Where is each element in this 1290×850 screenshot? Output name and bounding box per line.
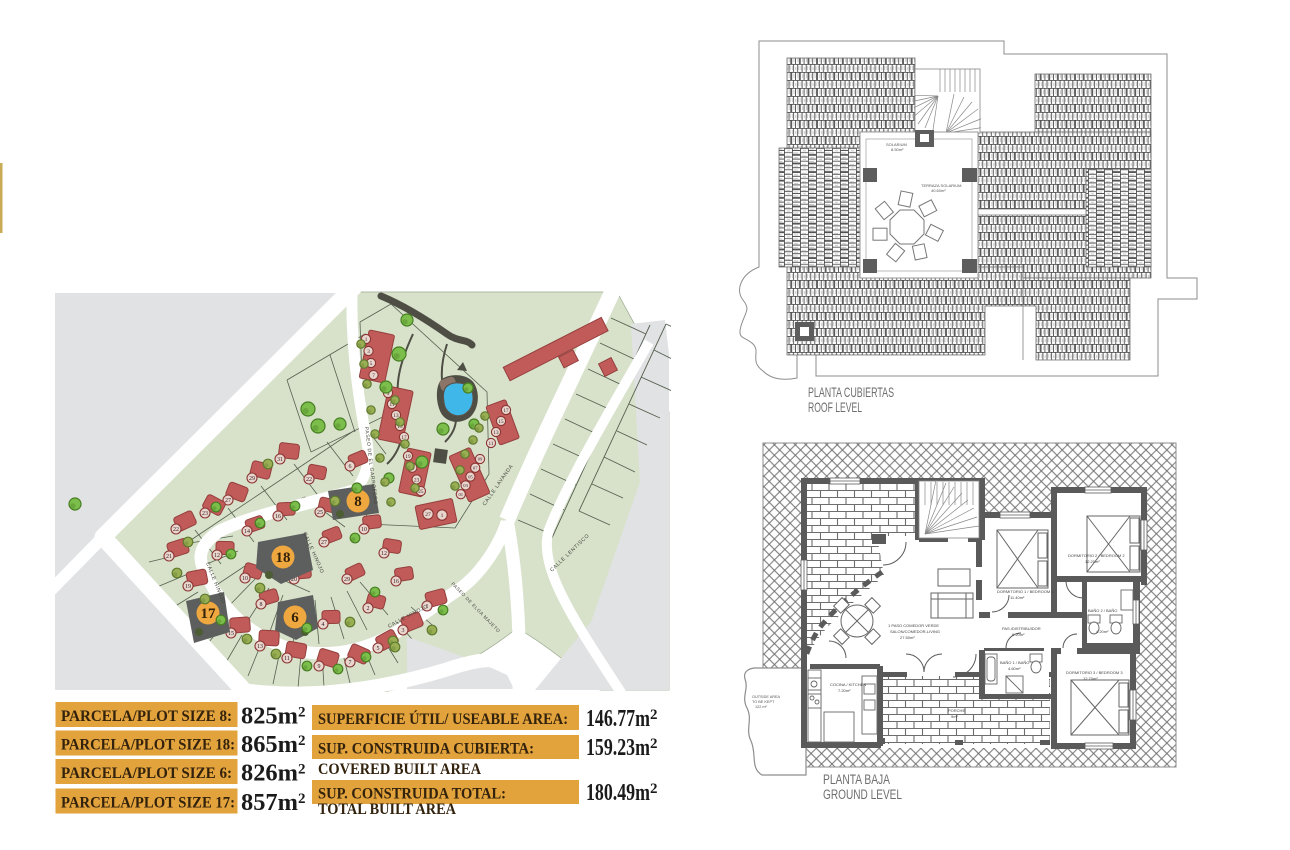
svg-text:40.60m²: 40.60m² — [931, 188, 946, 193]
svg-text:25: 25 — [317, 510, 323, 516]
svg-text:07: 07 — [473, 466, 478, 471]
svg-text:8: 8 — [260, 602, 263, 608]
svg-text:11: 11 — [284, 656, 290, 662]
svg-text:SALON/COMEDOR-LIVING: SALON/COMEDOR-LIVING — [890, 629, 940, 634]
svg-text:SUP. CONSTRUIDA CUBIERTA:: SUP. CONSTRUIDA CUBIERTA: — [318, 741, 534, 758]
svg-text:DORMITORIO 3 / BEDROOM 3: DORMITORIO 3 / BEDROOM 3 — [1066, 670, 1123, 675]
svg-text:SUP. CONSTRUIDA TOTAL:: SUP. CONSTRUIDA TOTAL: — [318, 786, 506, 803]
svg-text:1 PASO COMEDOR VERDE: 1 PASO COMEDOR VERDE — [888, 623, 939, 628]
svg-text:01: 01 — [459, 492, 464, 497]
svg-text:09: 09 — [478, 457, 483, 462]
svg-text:PARCELA/PLOT SIZE 17:: PARCELA/PLOT SIZE 17: — [61, 795, 235, 812]
svg-text:23: 23 — [202, 511, 208, 517]
svg-text:16: 16 — [393, 579, 399, 585]
svg-text:DORMITORIO 2 / BEDROOM 2: DORMITORIO 2 / BEDROOM 2 — [1068, 553, 1125, 558]
svg-text:05: 05 — [468, 474, 473, 479]
svg-text:122 m²: 122 m² — [755, 705, 768, 709]
svg-text:5: 5 — [377, 646, 380, 652]
svg-text:COVERED BUILT AREA: COVERED BUILT AREA — [318, 761, 481, 778]
svg-text:PAS./DISTRIBUIDOR: PAS./DISTRIBUIDOR — [1002, 626, 1041, 631]
svg-text:TOTAL BUILT AREA: TOTAL BUILT AREA — [318, 801, 456, 818]
svg-text:DORMITORIO 1 / BEDROOM 1: DORMITORIO 1 / BEDROOM 1 — [997, 589, 1054, 594]
svg-text:9m²: 9m² — [951, 714, 959, 719]
svg-text:17: 17 — [201, 606, 217, 622]
svg-text:PARCELA/PLOT SIZE 8:: PARCELA/PLOT SIZE 8: — [61, 708, 232, 725]
svg-text:9: 9 — [318, 664, 321, 670]
svg-text:23: 23 — [414, 477, 420, 483]
svg-text:29: 29 — [344, 577, 350, 583]
svg-text:PLANTA BAJA: PLANTA BAJA — [823, 772, 890, 787]
svg-text:6: 6 — [349, 464, 352, 470]
svg-text:21: 21 — [166, 554, 172, 560]
svg-text:PLANTA CUBIERTAS: PLANTA CUBIERTAS — [808, 384, 894, 400]
svg-text:ROOF LEVEL: ROOF LEVEL — [808, 399, 862, 415]
svg-text:27: 27 — [225, 498, 231, 504]
svg-text:16: 16 — [275, 514, 281, 520]
svg-text:146.77m2: 146.77m2 — [586, 706, 658, 732]
svg-text:159.23m2: 159.23m2 — [586, 735, 658, 761]
svg-text:12: 12 — [214, 553, 220, 559]
svg-text:PARCELA/PLOT SIZE 6:: PARCELA/PLOT SIZE 6: — [61, 765, 232, 782]
svg-text:4.60m²: 4.60m² — [1008, 666, 1021, 671]
svg-text:5: 5 — [370, 361, 373, 367]
svg-text:22: 22 — [173, 527, 179, 533]
svg-text:11: 11 — [489, 441, 494, 447]
svg-text:10: 10 — [361, 527, 367, 533]
svg-text:7: 7 — [372, 373, 375, 379]
svg-text:18: 18 — [276, 550, 291, 566]
svg-text:2: 2 — [367, 606, 370, 612]
svg-text:865m2: 865m2 — [241, 732, 306, 758]
svg-text:19: 19 — [405, 454, 411, 460]
svg-text:TO BE KEPT: TO BE KEPT — [752, 700, 775, 704]
svg-text:GROUND LEVEL: GROUND LEVEL — [823, 787, 902, 802]
svg-text:7: 7 — [349, 660, 352, 666]
svg-text:10: 10 — [242, 576, 248, 582]
svg-text:29: 29 — [249, 476, 255, 482]
svg-text:857m2: 857m2 — [241, 790, 306, 816]
svg-text:826m2: 826m2 — [241, 761, 306, 787]
svg-text:27: 27 — [425, 512, 431, 518]
svg-text:8: 8 — [354, 494, 362, 510]
svg-text:6: 6 — [291, 610, 299, 626]
svg-text:4.20m²: 4.20m² — [1096, 629, 1109, 634]
svg-text:12.20m²: 12.20m² — [1085, 559, 1100, 564]
svg-text:27: 27 — [321, 540, 327, 546]
svg-text:17: 17 — [503, 408, 509, 414]
svg-text:11.40m²: 11.40m² — [1010, 595, 1025, 600]
svg-text:180.49m2: 180.49m2 — [586, 780, 658, 806]
svg-text:1: 1 — [441, 513, 444, 519]
svg-text:PORCHE: PORCHE — [948, 708, 965, 713]
svg-text:4: 4 — [322, 622, 325, 628]
svg-text:22: 22 — [306, 477, 312, 483]
svg-text:14: 14 — [244, 529, 250, 535]
svg-text:SUPERFICIE ÚTIL/ USEABLE AREA:: SUPERFICIE ÚTIL/ USEABLE AREA: — [318, 709, 568, 728]
svg-text:12.70m²: 12.70m² — [1083, 676, 1098, 681]
svg-text:03: 03 — [463, 483, 468, 488]
svg-text:31: 31 — [277, 457, 283, 463]
svg-text:13: 13 — [257, 644, 263, 650]
svg-text:BAÑO 1 / BAÑO: BAÑO 1 / BAÑO — [1000, 660, 1029, 665]
svg-text:PARCELA/PLOT SIZE 18:: PARCELA/PLOT SIZE 18: — [61, 737, 235, 754]
svg-text:BAÑO 2 / BAÑO: BAÑO 2 / BAÑO — [1088, 608, 1117, 613]
svg-text:19: 19 — [185, 584, 191, 590]
svg-text:8.50m²: 8.50m² — [891, 147, 904, 152]
svg-text:15: 15 — [498, 419, 504, 425]
svg-text:6.20m²: 6.20m² — [1012, 632, 1025, 637]
svg-text:7.20m²: 7.20m² — [838, 688, 851, 693]
svg-text:3: 3 — [402, 628, 405, 634]
svg-text:OUTSIDE AREA: OUTSIDE AREA — [752, 695, 781, 699]
svg-text:825m2: 825m2 — [241, 704, 306, 730]
svg-text:13: 13 — [493, 430, 499, 436]
svg-text:3: 3 — [367, 349, 370, 355]
svg-text:27.50m²: 27.50m² — [900, 635, 915, 640]
svg-text:12: 12 — [381, 551, 387, 557]
svg-text:COCINA / KITCHEN: COCINA / KITCHEN — [830, 682, 866, 687]
